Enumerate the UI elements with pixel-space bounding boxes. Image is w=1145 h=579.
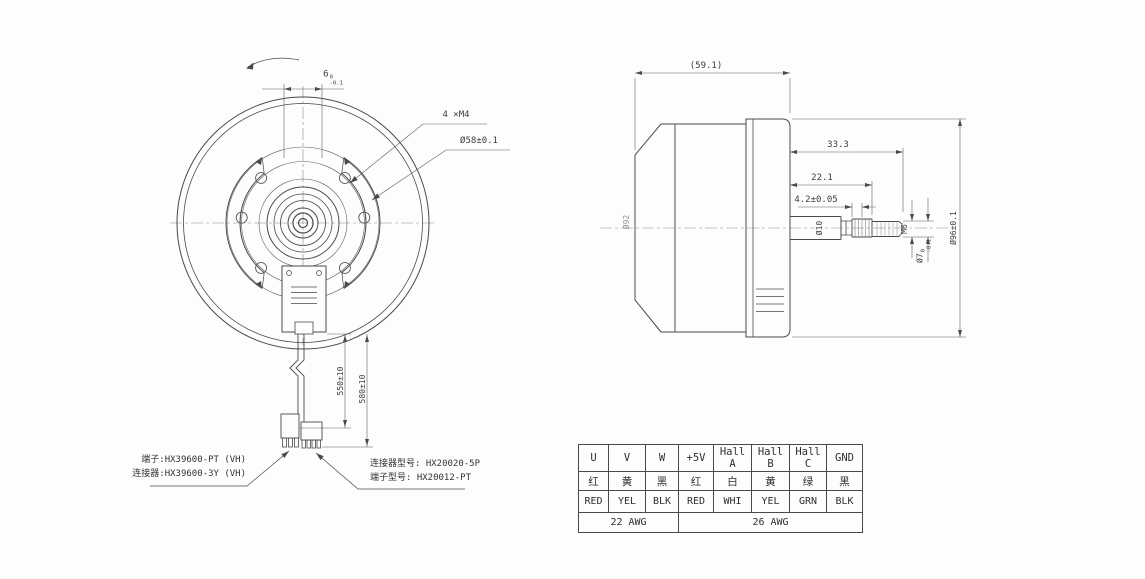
callout-terminal-right: 端子型号: HX20012-PT xyxy=(370,473,471,483)
wiring-awg-row: 22 AWG 26 AWG xyxy=(579,513,863,533)
side-view-linework xyxy=(600,71,966,337)
wiring-header-row: U V W +5V Hall A Hall B Hall C GND xyxy=(579,445,863,472)
dim-body-diameter: Ø92 xyxy=(622,215,632,229)
callout-connector-left: 连接器:HX39600-3Y (VH) xyxy=(128,469,246,479)
drawing-sheet: 60-0.1 4 ×M4 Ø58±0.1 550±10 580±10 端子:HX… xyxy=(0,0,1145,579)
awg-spec-signal: 26 AWG xyxy=(679,513,863,533)
dim-outer-diameter: Ø96±0.1 xyxy=(949,211,959,245)
front-view-linework xyxy=(150,58,510,489)
wiring-table: U V W +5V Hall A Hall B Hall C GND 红 黄 黑… xyxy=(578,444,863,533)
wiring-header-cell: GND xyxy=(827,445,863,472)
dim-shaft-flats: 60-0.1 xyxy=(323,70,343,87)
wire-color-en: YEL xyxy=(752,491,790,513)
wire-color-cn: 黑 xyxy=(646,472,679,491)
wire-color-cn: 黄 xyxy=(752,472,790,491)
wire-color-en: WHI xyxy=(714,491,752,513)
wire-color-cn: 绿 xyxy=(790,472,827,491)
wire-color-cn: 红 xyxy=(579,472,609,491)
dim-wire-length-1: 550±10 xyxy=(336,367,346,396)
dim-shaft-diameter: Ø10 xyxy=(815,220,825,236)
wire-color-en: RED xyxy=(579,491,609,513)
wiring-header-cell: +5V xyxy=(679,445,714,472)
wiring-header-cell: V xyxy=(609,445,646,472)
wire-color-en: RED xyxy=(679,491,714,513)
dim-wire-length-2: 580±10 xyxy=(358,375,368,404)
linework xyxy=(0,0,1145,579)
dim-mounting-holes: 4 ×M4 xyxy=(442,110,469,120)
wiring-color-cn-row: 红 黄 黑 红 白 黄 绿 黑 xyxy=(579,472,863,491)
dim-overall-length: (59.1) xyxy=(690,61,723,71)
dim-end-diameter: Ø70-0.1 xyxy=(916,239,933,263)
wiring-header-cell: Hall B xyxy=(752,445,790,472)
wiring-header-cell: W xyxy=(646,445,679,472)
wire-color-en: BLK xyxy=(827,491,863,513)
wire-color-cn: 黄 xyxy=(609,472,646,491)
dim-shaft-step: 22.1 xyxy=(811,173,833,183)
wire-color-en: BLK xyxy=(646,491,679,513)
dim-groove-width: 4.2±0.05 xyxy=(794,195,837,205)
wire-color-cn: 红 xyxy=(679,472,714,491)
dim-shaft-total: 33.3 xyxy=(827,140,849,150)
dim-bolt-circle: Ø58±0.1 xyxy=(460,136,498,146)
wire-color-cn: 白 xyxy=(714,472,752,491)
wiring-color-en-row: RED YEL BLK RED WHI YEL GRN BLK xyxy=(579,491,863,513)
wire-color-en: GRN xyxy=(790,491,827,513)
wire-color-en: YEL xyxy=(609,491,646,513)
callout-connector-right: 连接器型号: HX20020-5P xyxy=(370,459,480,469)
dim-thread-spec: M6 xyxy=(900,224,910,234)
wire-color-cn: 黑 xyxy=(827,472,863,491)
wiring-header-cell: Hall A xyxy=(714,445,752,472)
callout-terminal-left: 端子:HX39600-PT (VH) xyxy=(128,455,246,465)
awg-spec-power: 22 AWG xyxy=(579,513,679,533)
wiring-header-cell: Hall C xyxy=(790,445,827,472)
wiring-header-cell: U xyxy=(579,445,609,472)
